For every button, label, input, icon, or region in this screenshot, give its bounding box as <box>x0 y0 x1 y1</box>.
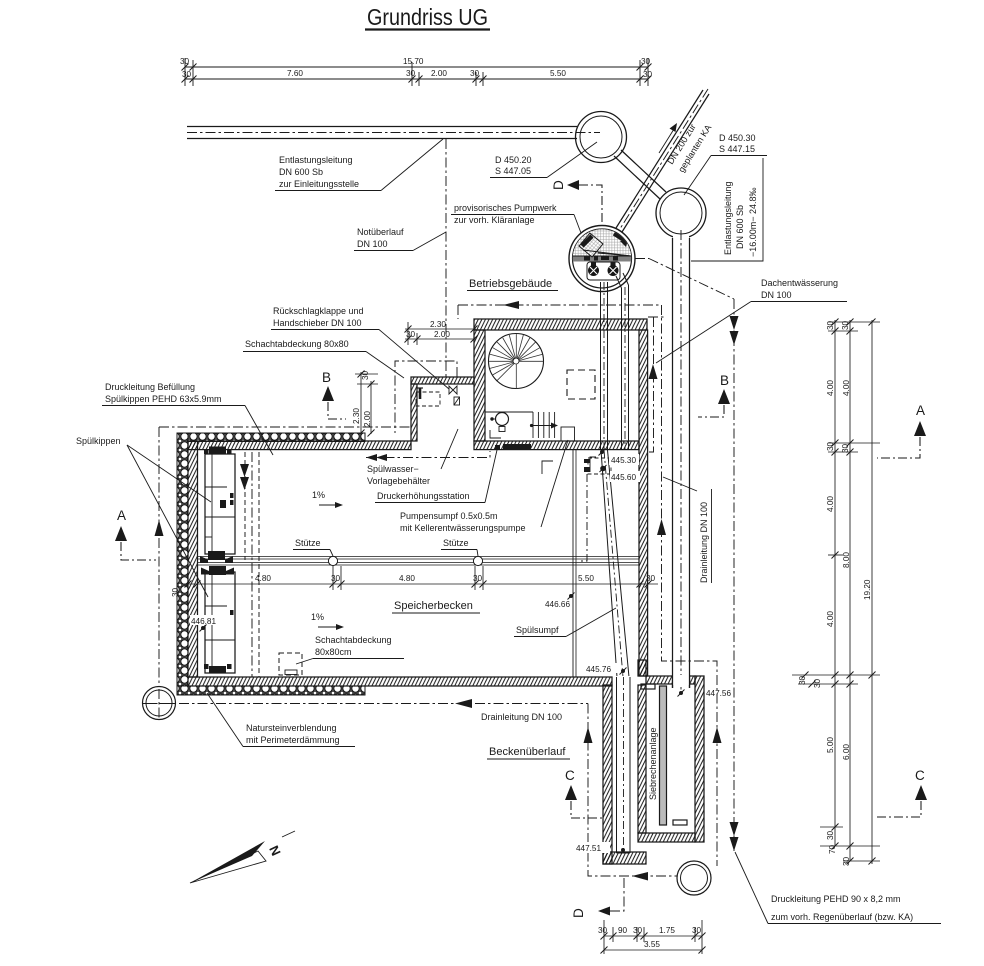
svg-text:A: A <box>916 403 925 418</box>
svg-text:30: 30 <box>826 320 835 330</box>
svg-text:30: 30 <box>331 574 341 583</box>
svg-text:C: C <box>915 768 925 783</box>
svg-text:15.70: 15.70 <box>403 57 424 66</box>
svg-text:4.00: 4.00 <box>826 496 835 512</box>
svg-text:Vorlagebehälter: Vorlagebehälter <box>367 476 430 486</box>
svg-text:8.00: 8.00 <box>842 552 851 568</box>
svg-text:Betriebsgebäude: Betriebsgebäude <box>469 278 552 290</box>
svg-text:Spülwasser−: Spülwasser− <box>367 464 419 474</box>
svg-text:Stütze: Stütze <box>295 538 321 548</box>
svg-text:Dachentwässerung: Dachentwässerung <box>761 278 838 288</box>
svg-text:30: 30 <box>406 69 416 78</box>
svg-text:19.20: 19.20 <box>863 579 872 600</box>
svg-text:1%: 1% <box>311 612 324 622</box>
svg-text:1.75: 1.75 <box>659 926 675 935</box>
svg-text:445.30: 445.30 <box>611 456 636 465</box>
svg-text:A: A <box>117 508 126 523</box>
svg-text:Notüberlauf: Notüberlauf <box>357 227 404 237</box>
svg-text:Spülsumpf: Spülsumpf <box>516 625 559 635</box>
svg-text:30: 30 <box>643 70 653 79</box>
svg-text:30: 30 <box>641 57 651 66</box>
svg-text:447.56: 447.56 <box>706 689 731 698</box>
svg-text:Grundriss UG: Grundriss UG <box>367 4 488 30</box>
svg-text:S 447.15: S 447.15 <box>719 144 755 154</box>
svg-text:2.00: 2.00 <box>363 411 372 427</box>
svg-text:Spülkippen: Spülkippen <box>76 436 121 446</box>
svg-text:B: B <box>720 373 729 388</box>
svg-text:S 447.05: S 447.05 <box>495 166 531 176</box>
svg-text:30: 30 <box>692 926 702 935</box>
svg-text:Pumpensumpf 0.5x0.5m: Pumpensumpf 0.5x0.5m <box>400 511 498 521</box>
svg-text:2.00: 2.00 <box>431 69 447 78</box>
svg-text:30: 30 <box>598 926 608 935</box>
svg-text:3.55: 3.55 <box>644 940 660 949</box>
svg-text:5.50: 5.50 <box>578 574 594 583</box>
svg-text:mit Perimeterdämmung: mit Perimeterdämmung <box>246 735 340 745</box>
svg-text:C: C <box>565 768 575 783</box>
svg-text:2.30: 2.30 <box>352 408 361 424</box>
svg-text:zum vorh. Regenüberlauf (bz: zum vorh. Regenüberlauf (bzw. KA) <box>771 912 913 922</box>
svg-text:1%: 1% <box>312 490 325 500</box>
svg-text:Drainleitung DN 100: Drainleitung DN 100 <box>481 712 562 722</box>
svg-text:30: 30 <box>798 675 807 685</box>
svg-text:7.60: 7.60 <box>287 69 303 78</box>
svg-text:30: 30 <box>841 320 850 330</box>
svg-text:4.00: 4.00 <box>842 380 851 396</box>
svg-text:4.00: 4.00 <box>826 611 835 627</box>
svg-text:B: B <box>322 370 331 385</box>
svg-text:4.00: 4.00 <box>826 380 835 396</box>
svg-text:DN 100: DN 100 <box>761 290 792 300</box>
svg-text:Drainleitung DN 100: Drainleitung DN 100 <box>699 502 709 583</box>
svg-text:30: 30 <box>646 574 656 583</box>
svg-text:DN 100: DN 100 <box>357 239 388 249</box>
svg-text:30: 30 <box>171 587 180 597</box>
svg-text:2.30: 2.30 <box>430 320 446 329</box>
svg-text:30: 30 <box>842 856 851 866</box>
svg-text:Schachtabdeckung: Schachtabdeckung <box>315 635 392 645</box>
svg-text:Handschieber DN 100: Handschieber DN 100 <box>273 318 362 328</box>
svg-text:30: 30 <box>473 574 483 583</box>
svg-text:Natursteinverblendung: Natursteinverblendung <box>246 723 337 733</box>
svg-text:D: D <box>571 908 586 918</box>
svg-text:30: 30 <box>406 330 416 339</box>
svg-text:70: 70 <box>828 844 837 854</box>
svg-text:Siebrechenanlage: Siebrechenanlage <box>648 727 658 800</box>
svg-text:5.00: 5.00 <box>826 737 835 753</box>
svg-text:446.81: 446.81 <box>191 617 216 626</box>
svg-text:30: 30 <box>180 57 190 66</box>
svg-text:30: 30 <box>826 441 835 451</box>
svg-text:90: 90 <box>618 926 628 935</box>
svg-text:6.00: 6.00 <box>842 744 851 760</box>
svg-text:2.00: 2.00 <box>434 330 450 339</box>
svg-text:zur vorh. Kläranlage: zur vorh. Kläranlage <box>454 215 535 225</box>
svg-text:provisorisches Pumpwerk: provisorisches Pumpwerk <box>454 203 557 213</box>
svg-text:D 450.20: D 450.20 <box>495 155 532 165</box>
svg-text:−16.00m− 24.8‰: −16.00m− 24.8‰ <box>748 187 758 257</box>
svg-text:447.51: 447.51 <box>576 844 601 853</box>
svg-text:Entlastungsleitung: Entlastungsleitung <box>279 155 353 165</box>
svg-text:D: D <box>551 180 566 190</box>
svg-text:Druckleitung PEHD 90 x 8,2: Druckleitung PEHD 90 x 8,2 mm <box>771 894 901 904</box>
svg-text:30: 30 <box>826 830 835 840</box>
svg-text:445.60: 445.60 <box>611 473 636 482</box>
svg-text:Speicherbecken: Speicherbecken <box>394 600 473 612</box>
svg-text:Stütze: Stütze <box>443 538 469 548</box>
svg-text:446.66: 446.66 <box>545 600 570 609</box>
svg-text:80x80cm: 80x80cm <box>315 647 352 657</box>
svg-text:30: 30 <box>361 370 370 380</box>
svg-text:30: 30 <box>841 443 850 453</box>
svg-text:Beckenüberlauf: Beckenüberlauf <box>489 746 566 758</box>
svg-text:445.76: 445.76 <box>586 665 611 674</box>
svg-text:Rückschlagklappe und: Rückschlagklappe und <box>273 306 364 316</box>
svg-text:DN 600 Sb: DN 600 Sb <box>735 205 745 249</box>
svg-text:DN 600 Sb: DN 600 Sb <box>279 167 323 177</box>
svg-text:zur Einleitungsstelle: zur Einleitungsstelle <box>279 179 359 189</box>
svg-text:30: 30 <box>182 70 192 79</box>
svg-text:4.80: 4.80 <box>399 574 415 583</box>
svg-text:Schachtabdeckung 80x80: Schachtabdeckung 80x80 <box>245 339 349 349</box>
svg-text:5.50: 5.50 <box>550 69 566 78</box>
svg-text:30: 30 <box>633 926 643 935</box>
svg-text:30: 30 <box>470 69 480 78</box>
svg-text:mit Kellerentwässerungspumpe: mit Kellerentwässerungspumpe <box>400 523 526 533</box>
svg-text:Druckleitung Befüllung: Druckleitung Befüllung <box>105 382 195 392</box>
svg-text:30: 30 <box>813 678 822 688</box>
svg-text:4.80: 4.80 <box>255 574 271 583</box>
svg-text:D 450.30: D 450.30 <box>719 133 756 143</box>
svg-text:Entlastungsleitung: Entlastungsleitung <box>723 181 733 255</box>
svg-text:Druckerhöhungsstation: Druckerhöhungsstation <box>377 491 470 501</box>
svg-text:Spülkippen PEHD 63x5.9mm: Spülkippen PEHD 63x5.9mm <box>105 394 222 404</box>
